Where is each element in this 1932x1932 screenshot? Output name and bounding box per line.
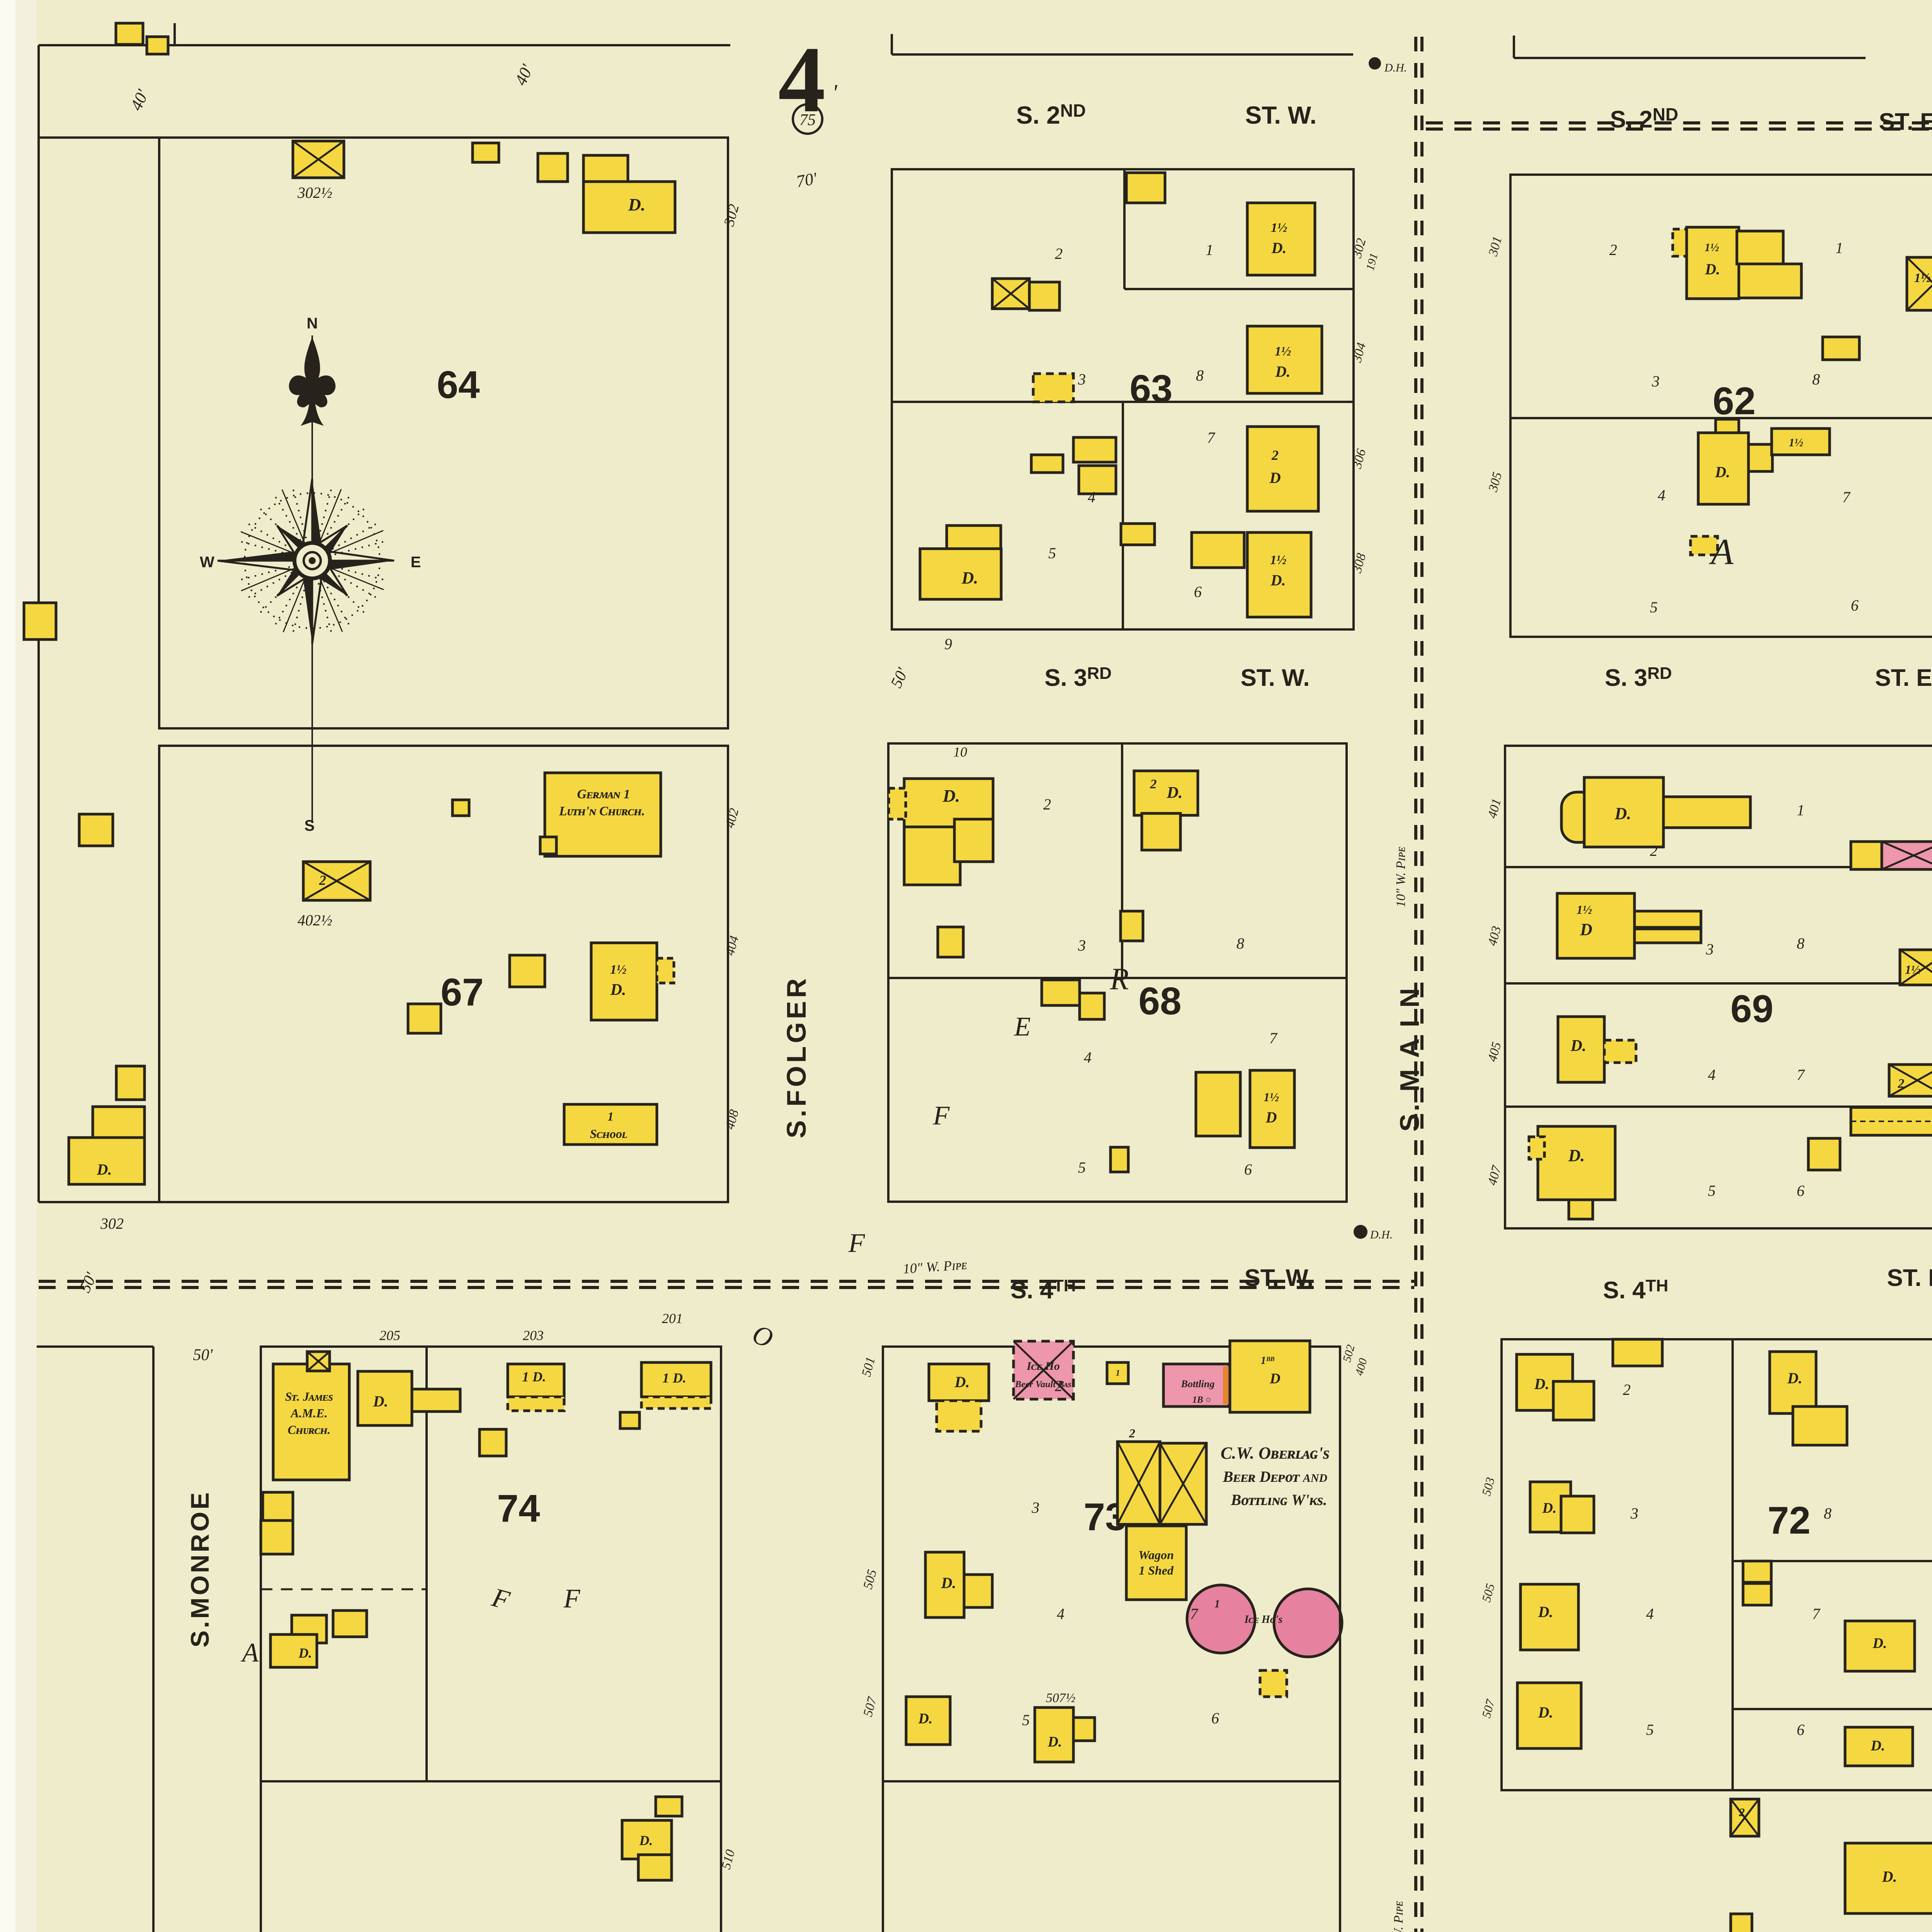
svg-text:N: N (307, 315, 318, 332)
svg-text:6: 6 (1194, 583, 1202, 600)
svg-text:6: 6 (1797, 1182, 1804, 1199)
svg-text:D.: D. (1167, 784, 1183, 802)
svg-text:D: D (1580, 920, 1592, 939)
svg-text:D.: D. (1871, 1738, 1885, 1754)
svg-text:7: 7 (1842, 488, 1851, 506)
svg-text:3: 3 (1031, 1499, 1039, 1516)
svg-text:75: 75 (799, 111, 816, 129)
svg-text:3: 3 (1706, 940, 1714, 958)
svg-text:1 Shed: 1 Shed (1139, 1563, 1174, 1577)
svg-text:64: 64 (437, 363, 480, 406)
svg-text:1½: 1½ (1905, 963, 1920, 976)
svg-text:Lᴜᴛʜ'ɴ Cʜᴜʀᴄʜ.: Lᴜᴛʜ'ɴ Cʜᴜʀᴄʜ. (559, 804, 645, 818)
svg-text:D.: D. (610, 981, 626, 999)
svg-text:5: 5 (1022, 1711, 1030, 1729)
svg-text:D.: D. (1705, 260, 1720, 278)
svg-text:4: 4 (1658, 486, 1665, 504)
svg-text:2: 2 (1609, 241, 1617, 259)
svg-text:Iᴄᴇ Hᴏ: Iᴄᴇ Hᴏ (1026, 1360, 1060, 1372)
svg-text:8: 8 (1824, 1505, 1832, 1522)
svg-text:1: 1 (1116, 1368, 1120, 1378)
svg-text:4: 4 (1646, 1605, 1654, 1622)
svg-text:D.: D. (1568, 1146, 1585, 1165)
svg-text:D.: D. (628, 195, 646, 214)
svg-text:72: 72 (1767, 1499, 1810, 1542)
svg-text:D.: D. (1787, 1369, 1803, 1387)
svg-text:A.M.E.: A.M.E. (290, 1406, 327, 1420)
svg-text:302: 302 (100, 1215, 124, 1232)
svg-text:D.: D. (954, 1373, 970, 1391)
svg-text:5: 5 (1646, 1721, 1654, 1738)
svg-text:7: 7 (1269, 1029, 1278, 1047)
svg-text:9: 9 (944, 635, 952, 653)
svg-text:8: 8 (1797, 935, 1804, 952)
svg-text:1: 1 (1206, 241, 1213, 259)
svg-text:R: R (1110, 962, 1129, 996)
svg-text:1: 1 (607, 1109, 614, 1123)
svg-text:8: 8 (1812, 371, 1820, 388)
svg-text:1B ○: 1B ○ (1192, 1395, 1211, 1405)
svg-text:205: 205 (379, 1328, 400, 1343)
svg-text:D.: D. (1275, 363, 1291, 380)
svg-text:2: 2 (1898, 1077, 1905, 1091)
svg-text:1 D.: 1 D. (662, 1370, 686, 1386)
svg-text:7: 7 (1797, 1066, 1805, 1083)
svg-text:67: 67 (440, 971, 483, 1014)
svg-text:Iᴄᴇ Hᴏ's: Iᴄᴇ Hᴏ's (1244, 1614, 1283, 1626)
svg-text:2: 2 (1129, 1426, 1135, 1440)
svg-text:E: E (1014, 1012, 1031, 1042)
svg-text:A: A (241, 1638, 259, 1668)
svg-text:Beer Vault Bᴀs: Beer Vault Bᴀs (1015, 1379, 1071, 1389)
svg-text:ST. W.: ST. W. (1245, 101, 1317, 129)
svg-text:10″ W. Pɪᴘᴇ: 10″ W. Pɪᴘᴇ (1394, 847, 1408, 907)
svg-text:7: 7 (1812, 1605, 1821, 1622)
svg-text:F: F (563, 1584, 581, 1614)
svg-text:6: 6 (1851, 597, 1859, 614)
svg-text:2: 2 (1271, 447, 1279, 463)
svg-text:6″ W. Pɪᴘᴇ: 6″ W. Pɪᴘᴇ (1391, 1901, 1406, 1932)
svg-text:Bottling: Bottling (1181, 1378, 1215, 1389)
svg-text:ST. E.: ST. E. (1887, 1265, 1932, 1291)
svg-text:': ' (832, 80, 838, 105)
svg-text:1½: 1½ (1914, 271, 1931, 285)
svg-text:5: 5 (1078, 1159, 1086, 1176)
svg-text:D.: D. (1715, 463, 1730, 481)
svg-text:D.: D. (1614, 804, 1631, 823)
svg-text:D.: D. (1872, 1635, 1887, 1651)
svg-text:Bᴏᴛᴛʟɪɴɢ W'ᴋs.: Bᴏᴛᴛʟɪɴɢ W'ᴋs. (1230, 1491, 1327, 1509)
svg-text:507½: 507½ (1046, 1691, 1076, 1705)
svg-text:D.: D. (97, 1161, 112, 1178)
svg-text:7: 7 (1207, 429, 1216, 446)
svg-text:Sᴄʜᴏᴏʟ: Sᴄʜᴏᴏʟ (590, 1127, 628, 1141)
svg-text:D.: D. (1538, 1704, 1553, 1721)
svg-text:ST. W.: ST. W. (1240, 665, 1310, 691)
svg-text:D.: D. (373, 1393, 388, 1410)
svg-text:201: 201 (662, 1311, 683, 1326)
svg-text:D.: D. (942, 786, 960, 806)
svg-text:D.: D. (298, 1645, 312, 1661)
svg-text:D.: D. (1270, 571, 1286, 589)
svg-text:8: 8 (1196, 367, 1204, 384)
svg-text:5: 5 (1650, 599, 1658, 616)
svg-text:2: 2 (1055, 1377, 1063, 1395)
svg-text:2: 2 (319, 872, 326, 888)
svg-text:D.: D. (1534, 1375, 1549, 1393)
svg-text:68: 68 (1138, 980, 1181, 1023)
svg-text:D.: D. (639, 1833, 653, 1848)
svg-text:2: 2 (1623, 1381, 1631, 1398)
svg-text:D: D (1269, 1371, 1280, 1387)
svg-text:D.H.: D.H. (1370, 1228, 1393, 1241)
svg-text:50': 50' (193, 1346, 213, 1364)
svg-text:6: 6 (1797, 1721, 1804, 1738)
svg-text:C.W. Oʙᴇʀʟᴀɢ's: C.W. Oʙᴇʀʟᴀɢ's (1221, 1444, 1330, 1463)
svg-text:ST. W.: ST. W. (1244, 1265, 1313, 1291)
svg-text:8: 8 (1236, 935, 1244, 952)
svg-text:2: 2 (1150, 777, 1157, 791)
svg-text:D: D (1265, 1109, 1277, 1126)
svg-text:Gᴇʀᴍᴀɴ 1: Gᴇʀᴍᴀɴ 1 (577, 787, 630, 801)
svg-text:D: D (1269, 469, 1281, 486)
svg-text:1½: 1½ (1789, 436, 1803, 449)
svg-text:1½: 1½ (1271, 221, 1287, 235)
svg-text:3: 3 (1630, 1505, 1638, 1522)
svg-text:1½: 1½ (1577, 903, 1592, 917)
svg-text:1½: 1½ (1270, 553, 1287, 567)
svg-text:1 D.: 1 D. (522, 1369, 546, 1384)
svg-text:6: 6 (1211, 1709, 1219, 1727)
svg-text:6: 6 (1244, 1161, 1252, 1178)
svg-text:D.: D. (1542, 1500, 1557, 1516)
svg-text:1½: 1½ (1275, 344, 1291, 359)
svg-text:D.: D. (941, 1574, 956, 1592)
svg-text:Cʜᴜʀᴄʜ.: Cʜᴜʀᴄʜ. (288, 1423, 331, 1437)
svg-text:5: 5 (1048, 544, 1056, 562)
svg-text:2: 2 (1739, 1806, 1745, 1819)
svg-text:F: F (933, 1101, 950, 1131)
svg-text:4: 4 (1088, 488, 1095, 506)
svg-text:402½: 402½ (298, 912, 332, 929)
svg-text:203: 203 (523, 1328, 544, 1343)
svg-text:D.: D. (918, 1711, 933, 1727)
svg-text:62: 62 (1713, 379, 1755, 423)
svg-text:F: F (848, 1228, 866, 1258)
svg-text:1½: 1½ (610, 963, 627, 977)
svg-text:1: 1 (1835, 239, 1843, 257)
svg-text:1ᴮᴮ: 1ᴮᴮ (1260, 1355, 1275, 1367)
svg-text:S: S (304, 817, 315, 834)
svg-text:4: 4 (1057, 1605, 1065, 1622)
svg-text:D.: D. (1538, 1603, 1553, 1621)
svg-text:Wagon: Wagon (1138, 1548, 1174, 1562)
svg-text:302½: 302½ (297, 184, 332, 201)
svg-text:2: 2 (1055, 245, 1063, 262)
svg-text:70': 70' (795, 169, 819, 191)
svg-text:A: A (1709, 531, 1734, 572)
svg-text:5: 5 (1708, 1182, 1716, 1199)
svg-text:D.: D. (1570, 1037, 1587, 1055)
svg-text:2: 2 (1043, 796, 1051, 813)
svg-text:7: 7 (1190, 1605, 1199, 1622)
svg-text:S. M A I N: S. M A I N (1395, 986, 1425, 1132)
svg-text:1½: 1½ (1704, 241, 1719, 254)
svg-text:63: 63 (1129, 367, 1172, 410)
svg-text:ST. E.: ST. E. (1879, 109, 1932, 135)
svg-text:D.: D. (1271, 239, 1287, 257)
svg-text:3: 3 (1078, 371, 1086, 388)
svg-text:S.FOLGER: S.FOLGER (781, 975, 811, 1138)
svg-text:1½: 1½ (1264, 1090, 1279, 1104)
svg-text:Sᴛ. Jᴀᴍᴇs: Sᴛ. Jᴀᴍᴇs (285, 1389, 333, 1403)
svg-text:S.MONROE: S.MONROE (185, 1490, 214, 1647)
svg-text:1: 1 (1797, 801, 1804, 819)
svg-text:69: 69 (1730, 987, 1773, 1031)
svg-text:W: W (200, 554, 214, 571)
svg-text:2: 2 (1650, 842, 1658, 859)
svg-text:3: 3 (1078, 937, 1086, 954)
svg-text:D.H.: D.H. (1384, 61, 1407, 74)
svg-text:D.: D. (1048, 1734, 1062, 1750)
svg-text:1: 1 (1214, 1598, 1220, 1610)
svg-text:D.: D. (1882, 1868, 1897, 1885)
svg-text:3: 3 (1651, 372, 1660, 390)
svg-text:4: 4 (1708, 1066, 1716, 1083)
svg-text:ST. E.: ST. E. (1875, 665, 1932, 691)
svg-text:74: 74 (497, 1487, 540, 1530)
svg-text:D.: D. (961, 568, 978, 587)
svg-text:4: 4 (1084, 1049, 1092, 1066)
svg-text:10: 10 (953, 744, 967, 760)
svg-text:E: E (411, 554, 421, 571)
